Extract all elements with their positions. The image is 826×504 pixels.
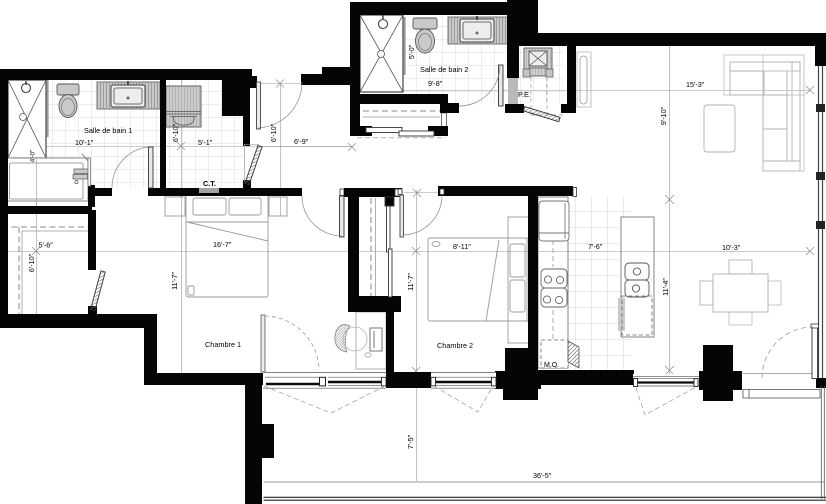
svg-text:Chambre 2: Chambre 2 — [437, 341, 473, 350]
svg-text:M.O.: M.O. — [544, 362, 559, 369]
svg-text:Chambre 1: Chambre 1 — [205, 340, 241, 349]
svg-text:C.T.: C.T. — [203, 179, 216, 188]
svg-text:5′-1″: 5′-1″ — [198, 138, 213, 147]
svg-text:6′-10″: 6′-10″ — [27, 253, 36, 272]
svg-text:8′-11″: 8′-11″ — [453, 242, 471, 251]
svg-text:9′-10″: 9′-10″ — [659, 106, 668, 125]
svg-text:11′-4″: 11′-4″ — [661, 278, 670, 296]
svg-text:7′-6″: 7′-6″ — [588, 242, 603, 251]
svg-text:Salle de bain 2: Salle de bain 2 — [420, 65, 468, 74]
svg-text:9′-8″: 9′-8″ — [428, 79, 443, 88]
svg-text:11′-7″: 11′-7″ — [406, 273, 415, 291]
svg-text:36′-5″: 36′-5″ — [533, 471, 552, 480]
svg-text:7′-5″: 7′-5″ — [406, 434, 415, 449]
svg-text:6′-10″: 6′-10″ — [171, 123, 180, 142]
svg-text:5′-0″: 5′-0″ — [407, 44, 416, 59]
svg-text:10′-1″: 10′-1″ — [75, 138, 94, 147]
svg-text:Salle de bain 1: Salle de bain 1 — [84, 126, 132, 135]
svg-text:6′-9″: 6′-9″ — [294, 137, 309, 146]
svg-text:11′-7″: 11′-7″ — [170, 272, 179, 290]
svg-text:5′-6″: 5′-6″ — [39, 241, 54, 250]
svg-text:6′-10″: 6′-10″ — [269, 123, 278, 142]
svg-text:4′-0″: 4′-0″ — [30, 149, 37, 162]
svg-text:P.E.: P.E. — [518, 90, 531, 99]
svg-text:16′-7″: 16′-7″ — [213, 240, 232, 249]
svg-text:15′-3″: 15′-3″ — [686, 80, 705, 89]
svg-text:10′-3″: 10′-3″ — [722, 243, 741, 252]
